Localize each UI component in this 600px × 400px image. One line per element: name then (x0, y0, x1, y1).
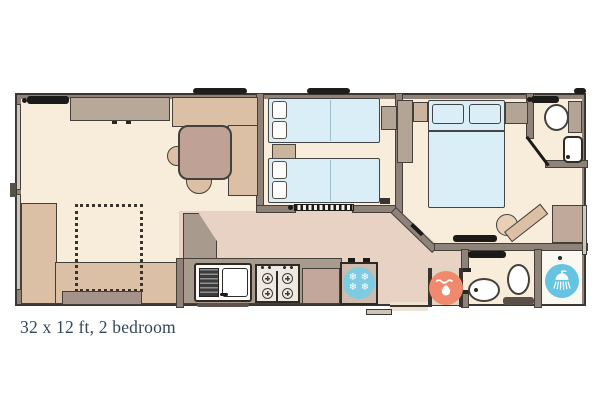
flame-icon (433, 275, 459, 301)
master-cupboard-left (413, 102, 428, 122)
living-radiator-valve (22, 98, 27, 103)
twin-bed-2-fold (330, 160, 331, 201)
bathroom-basin-drain (474, 288, 478, 292)
snowflake-icon: ❄ (360, 283, 371, 293)
master-pillow-left (432, 104, 464, 124)
bathroom-radiator (468, 251, 506, 258)
sink-plinth (197, 303, 249, 307)
master-radiator (453, 235, 497, 242)
entrance-door-line (390, 305, 428, 307)
wall-bathroom-top (434, 243, 588, 251)
twin-bedside-shelf (272, 144, 296, 159)
coffee-table (62, 291, 142, 305)
twin-bed-2-pillow-b (272, 181, 287, 199)
snowflake-icon: ❄ (348, 283, 359, 293)
dining-bench-top (172, 97, 258, 127)
bathroom-toilet-base (503, 297, 534, 305)
bathroom-basin (468, 278, 500, 302)
hob-knob-4 (290, 266, 293, 269)
hob-burner-3 (282, 273, 293, 284)
wall-toilet-shower (534, 249, 542, 308)
master-corner-cupboard (552, 205, 583, 243)
shower-icon (545, 264, 579, 298)
twin-bed-1-pillow-b (272, 121, 287, 139)
hob-divider (276, 271, 278, 301)
roof-vent-wc (574, 88, 586, 94)
twin-bedroom-sliding-door (294, 204, 354, 211)
hob-knob-2 (268, 266, 271, 269)
shower-control (558, 256, 562, 260)
roof-vent-dining (193, 88, 247, 94)
plan-caption: 32 x 12 ft, 2 bedroom (20, 317, 176, 338)
hob-knob-3 (283, 266, 286, 269)
sofa-top-feet2 (126, 121, 131, 124)
twin-bed-1-fold (330, 100, 331, 141)
optional-bed-dotted-outline (75, 204, 143, 292)
twin-door-stop (380, 198, 390, 204)
sofa-top-feet (112, 121, 117, 124)
kitchen-base-cabinet (302, 268, 340, 304)
wc-toilet-cistern (568, 101, 582, 133)
wc-radiator-valve (527, 97, 532, 102)
boiler-icon (429, 271, 463, 305)
dining-table (178, 125, 232, 180)
front-window-mullion (10, 183, 16, 197)
hob-burner-1 (262, 273, 273, 284)
fridge-freezer-icon: ❄ ❄ ❄ ❄ (343, 267, 375, 299)
dining-bench-right (228, 125, 258, 196)
front-window-lower (16, 194, 21, 290)
bathroom-toilet-bowl (507, 264, 530, 295)
twin-bed-2-pillow-a (272, 161, 287, 179)
hob-burner-2 (262, 288, 273, 299)
sofa-left (21, 203, 57, 304)
fridge-foot-right (363, 258, 370, 262)
living-radiator (27, 96, 69, 104)
master-wardrobe-right (505, 102, 528, 124)
snowflake-icon-grid: ❄ ❄ ❄ ❄ (348, 273, 371, 293)
roof-vent-twin (307, 88, 350, 94)
front-window-upper (16, 104, 21, 190)
master-pillow-right (469, 104, 501, 124)
sofa-top (70, 97, 170, 121)
floorplan-canvas: ❄ ❄ ❄ ❄ (0, 0, 600, 400)
hob-burner-4 (282, 288, 293, 299)
twin-overhead-cupboard (381, 106, 397, 130)
wc-basin-drain (566, 155, 570, 159)
sliding-door-end-knob (288, 205, 293, 210)
wc-radiator (531, 96, 559, 103)
shower-head-icon (549, 268, 575, 294)
sink-drainer (199, 268, 219, 297)
master-bed-sheet-line (429, 130, 504, 132)
master-wardrobe-left (397, 100, 413, 163)
entrance-step (366, 309, 392, 315)
fridge-foot-left (348, 258, 355, 262)
sink-tap (220, 293, 228, 296)
hob-knob-1 (261, 266, 264, 269)
wc-toilet-bowl (544, 104, 569, 131)
wc-basin (563, 136, 583, 163)
twin-bed-1-pillow-a (272, 101, 287, 119)
